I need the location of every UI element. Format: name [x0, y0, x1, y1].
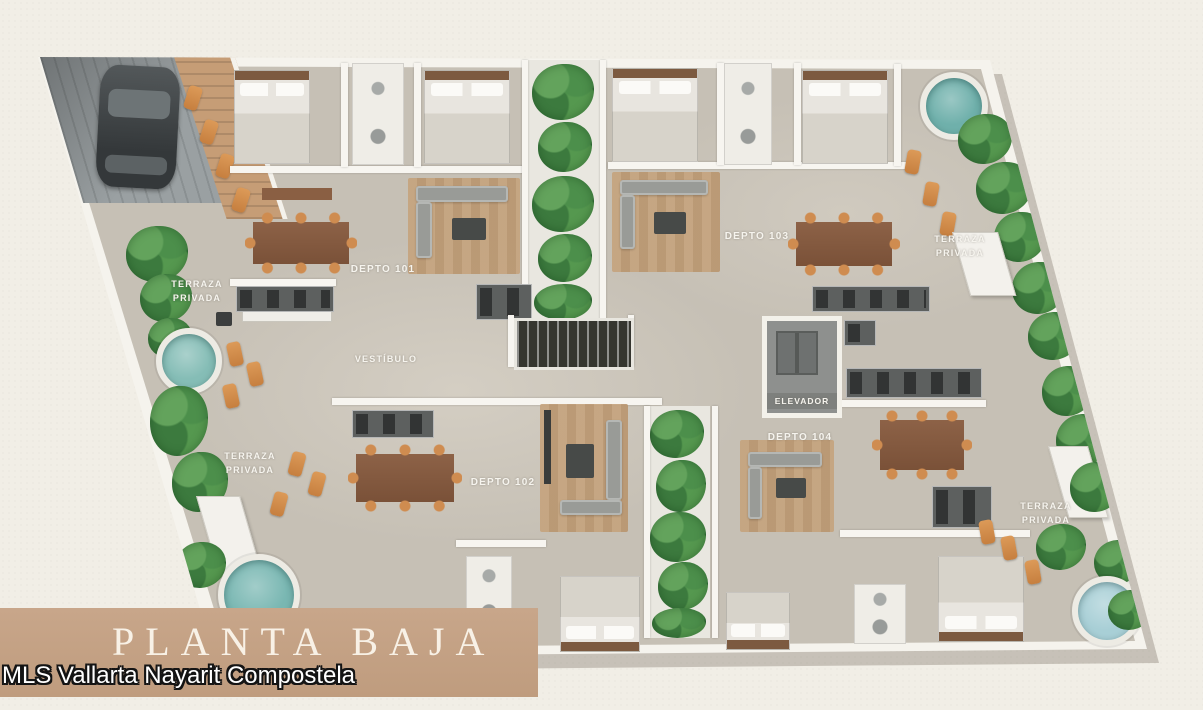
- terrace-label-upper-right: TERRAZA PRIVADA: [934, 233, 985, 260]
- watermark: MLS Vallarta Nayarit Compostela: [2, 664, 355, 688]
- car: [95, 64, 181, 190]
- kitchen-counter: [812, 286, 930, 312]
- bed: [802, 70, 888, 164]
- coffee-table: [776, 478, 806, 498]
- dining-table: [245, 212, 357, 274]
- unit-label-104: DEPTO 104: [768, 430, 833, 445]
- bathroom-fixtures: [854, 584, 906, 644]
- wall: [414, 63, 421, 167]
- bed: [424, 70, 510, 164]
- floor-title: PLANTA BAJA: [112, 622, 495, 662]
- coffee-table: [452, 218, 486, 240]
- wall: [341, 63, 348, 167]
- coffee-table: [566, 444, 594, 478]
- wall: [600, 60, 606, 322]
- terrace-label-lower-right: TERRAZA PRIVADA: [1020, 500, 1071, 527]
- bed: [234, 70, 310, 164]
- bathroom-fixtures: [352, 63, 404, 165]
- kitchen-counter: [846, 368, 982, 398]
- wall: [456, 540, 546, 547]
- sofa: [748, 452, 822, 467]
- sofa: [606, 420, 622, 500]
- sofa: [620, 195, 635, 249]
- elevator-label: ELEVADOR: [775, 395, 830, 408]
- wall: [717, 63, 724, 165]
- elevator: ELEVADOR: [762, 316, 842, 418]
- wall: [836, 400, 986, 407]
- wall: [712, 406, 718, 638]
- elevator-label-plate: ELEVADOR: [767, 393, 837, 409]
- tv-console: [544, 410, 551, 484]
- sofa: [560, 500, 622, 515]
- bed: [726, 592, 790, 650]
- wall: [230, 279, 336, 286]
- kitchen-counter: [844, 320, 876, 346]
- wall: [840, 530, 1030, 537]
- sideboard: [262, 188, 332, 200]
- lobby-label: VESTÍBULO: [355, 353, 417, 367]
- unit-label-101: DEPTO 101: [351, 262, 416, 277]
- unit-label-103: DEPTO 103: [725, 229, 790, 244]
- wall: [894, 64, 901, 166]
- bbq-grill: [216, 312, 232, 326]
- sofa: [416, 202, 432, 258]
- terrace-label-lower-left: TERRAZA PRIVADA: [224, 450, 275, 477]
- terrace-label-upper-left: TERRAZA PRIVADA: [171, 278, 222, 305]
- elevator-cab: [776, 331, 818, 375]
- coffee-table: [654, 212, 686, 234]
- pool: [156, 328, 222, 394]
- staircase: [514, 318, 634, 370]
- sofa: [620, 180, 708, 195]
- sofa: [748, 467, 762, 519]
- wall: [644, 406, 650, 638]
- bed: [612, 68, 698, 162]
- dining-table: [788, 212, 900, 276]
- bed: [938, 556, 1024, 642]
- wall: [794, 63, 801, 165]
- wall: [230, 166, 526, 173]
- bed: [560, 576, 640, 652]
- dining-table: [348, 444, 462, 512]
- sofa: [416, 186, 508, 202]
- floor-plan-page: ELEVADOR: [0, 0, 1203, 710]
- kitchen-counter: [352, 410, 434, 438]
- unit-label-102: DEPTO 102: [471, 475, 536, 490]
- kitchen-counter: [476, 284, 532, 320]
- bathroom-fixtures: [724, 63, 772, 165]
- kitchen-counter: [236, 286, 334, 312]
- dining-table: [872, 410, 972, 480]
- building-plan: ELEVADOR: [0, 0, 1203, 710]
- wall: [522, 60, 528, 322]
